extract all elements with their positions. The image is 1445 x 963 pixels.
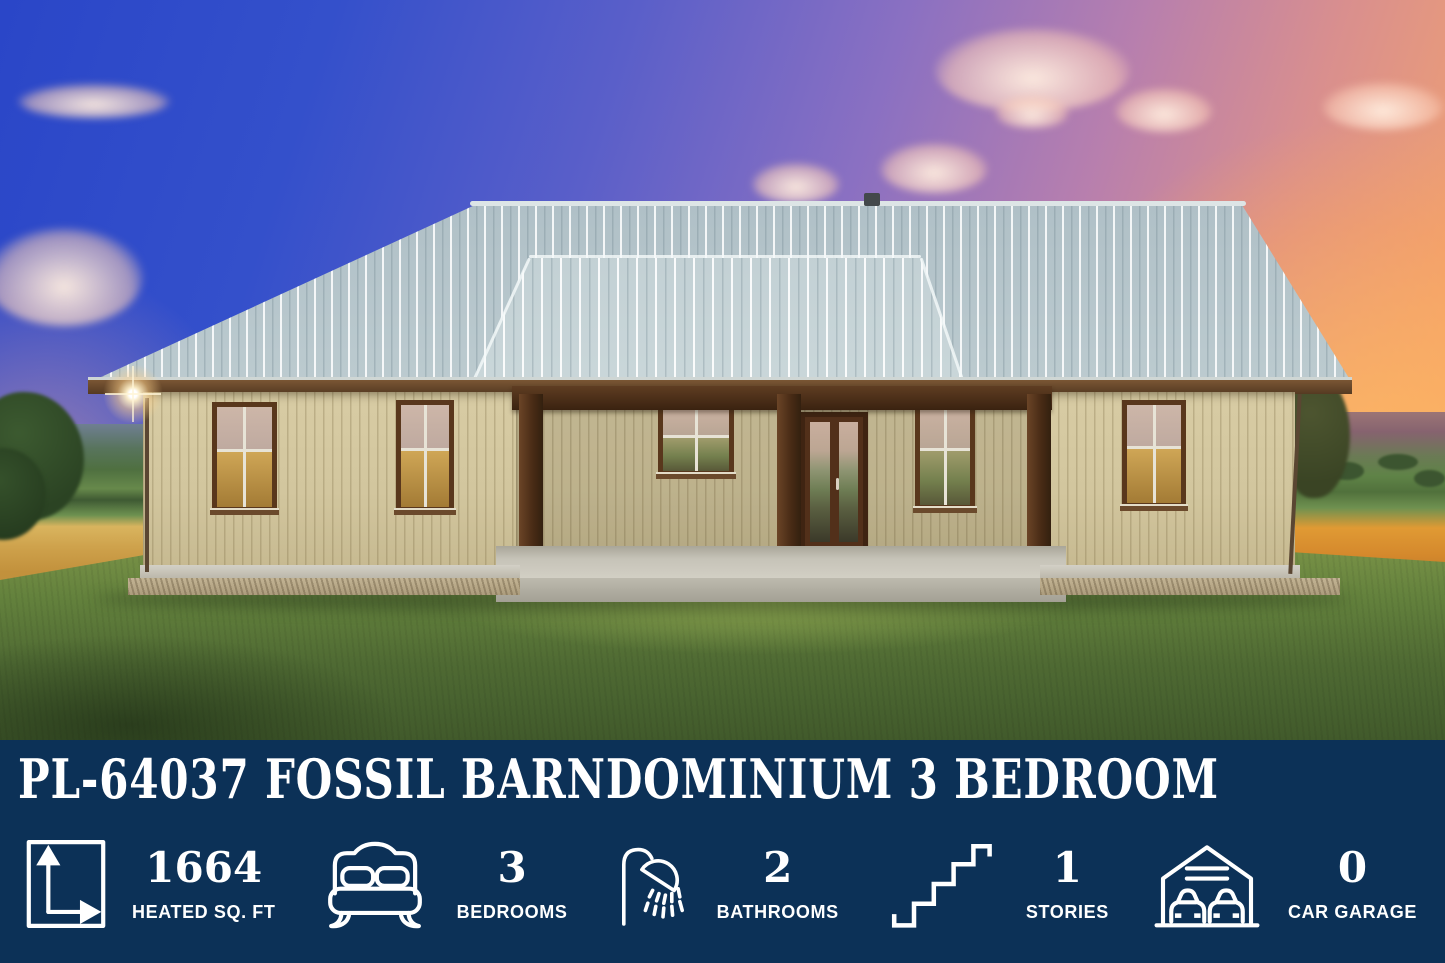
stat-value: 3: [497, 847, 526, 889]
porch-slab-face: [496, 578, 1066, 602]
porch-roof-edge: [529, 255, 921, 258]
garage-icon: [1152, 838, 1262, 930]
window: [212, 402, 277, 512]
stat-value: 1: [1053, 847, 1082, 889]
window-pane: [217, 407, 243, 449]
bed-icon: [319, 837, 431, 931]
listing-card: PL-64037 FOSSIL BARNDOMINIUM 3 BEDROOM 1…: [0, 0, 1445, 963]
house-photo: [0, 0, 1445, 740]
foundation-strip: [1040, 565, 1300, 578]
stats-row: 1664 HEATED SQ. FT 3 BEDROOMS: [0, 828, 1445, 940]
stat-value: 2: [763, 847, 792, 889]
window-pane: [920, 451, 944, 505]
info-banner: PL-64037 FOSSIL BARNDOMINIUM 3 BEDROOM 1…: [0, 740, 1445, 963]
window-pane: [427, 405, 450, 448]
stat-car-garage: 0 CAR GARAGE: [1152, 838, 1417, 930]
window-pane: [698, 438, 730, 471]
stat-bathrooms: 2 BATHROOMS: [611, 834, 839, 934]
door-leaf: [836, 419, 862, 545]
stat-stories: 1 STORIES: [882, 839, 1109, 929]
roof-ridge-cap: [470, 201, 1246, 206]
window-pane: [246, 407, 272, 449]
window-pane: [217, 452, 243, 507]
door-leaf: [807, 419, 833, 545]
plan-title: PL-64037 FOSSIL BARNDOMINIUM 3 BEDROOM: [18, 752, 1219, 806]
downspout: [145, 398, 149, 572]
cloud: [1322, 82, 1444, 130]
stat-heated-sqft: 1664 HEATED SQ. FT: [26, 838, 275, 930]
window-pane: [401, 405, 424, 448]
stat-label: CAR GARAGE: [1288, 903, 1417, 921]
stat-label: BEDROOMS: [457, 903, 568, 921]
hedgerow: [1378, 454, 1418, 470]
window: [658, 404, 734, 476]
window-pane: [427, 451, 450, 507]
porch-slab: [496, 546, 1066, 578]
window: [1122, 400, 1186, 508]
left-wall-siding: [143, 392, 520, 572]
stat-value: 1664: [145, 847, 262, 889]
stat-value: 0: [1338, 847, 1367, 889]
window-pane: [663, 438, 695, 471]
window: [396, 400, 454, 512]
window-pane: [1156, 405, 1182, 446]
window-pane: [401, 451, 424, 507]
stat-label: BATHROOMS: [717, 903, 839, 921]
window-pane: [947, 407, 971, 448]
area-dimensions-icon: [26, 838, 106, 930]
roof-vent: [864, 193, 880, 206]
window-pane: [947, 451, 971, 505]
stat-label: HEATED SQ. FT: [132, 903, 275, 921]
shower-icon: [611, 834, 691, 934]
window-pane: [1156, 449, 1182, 503]
gravel-bed: [1040, 578, 1340, 595]
window: [915, 402, 975, 510]
window-pane: [920, 407, 944, 448]
stairs-icon: [882, 839, 1000, 929]
stat-bedrooms: 3 BEDROOMS: [319, 837, 568, 931]
window-pane: [246, 452, 272, 507]
window-pane: [663, 409, 695, 435]
door-handle: [836, 478, 839, 490]
french-door: [800, 412, 868, 552]
gravel-bed: [128, 578, 520, 595]
foundation-strip: [140, 565, 520, 578]
window-pane: [698, 409, 730, 435]
cloud: [995, 96, 1069, 128]
cloud: [18, 84, 170, 118]
window-pane: [1127, 449, 1153, 503]
cloud: [880, 143, 988, 193]
stat-label: STORIES: [1026, 903, 1109, 921]
hedgerow: [1414, 470, 1445, 487]
porch-light-glare: [103, 364, 163, 424]
window-pane: [1127, 405, 1153, 446]
cloud: [1115, 88, 1213, 132]
cloud: [752, 163, 840, 203]
